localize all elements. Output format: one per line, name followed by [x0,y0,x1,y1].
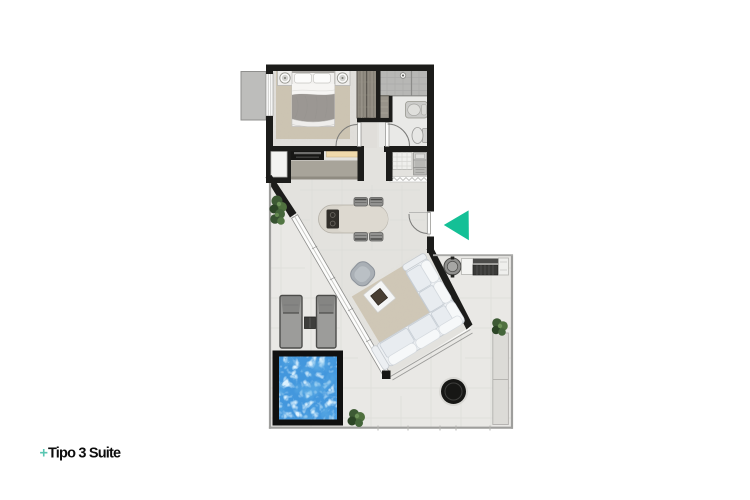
svg-text:Tipo 3 Suite: Tipo 3 Suite [48,446,121,462]
svg-text:+: + [40,446,48,462]
